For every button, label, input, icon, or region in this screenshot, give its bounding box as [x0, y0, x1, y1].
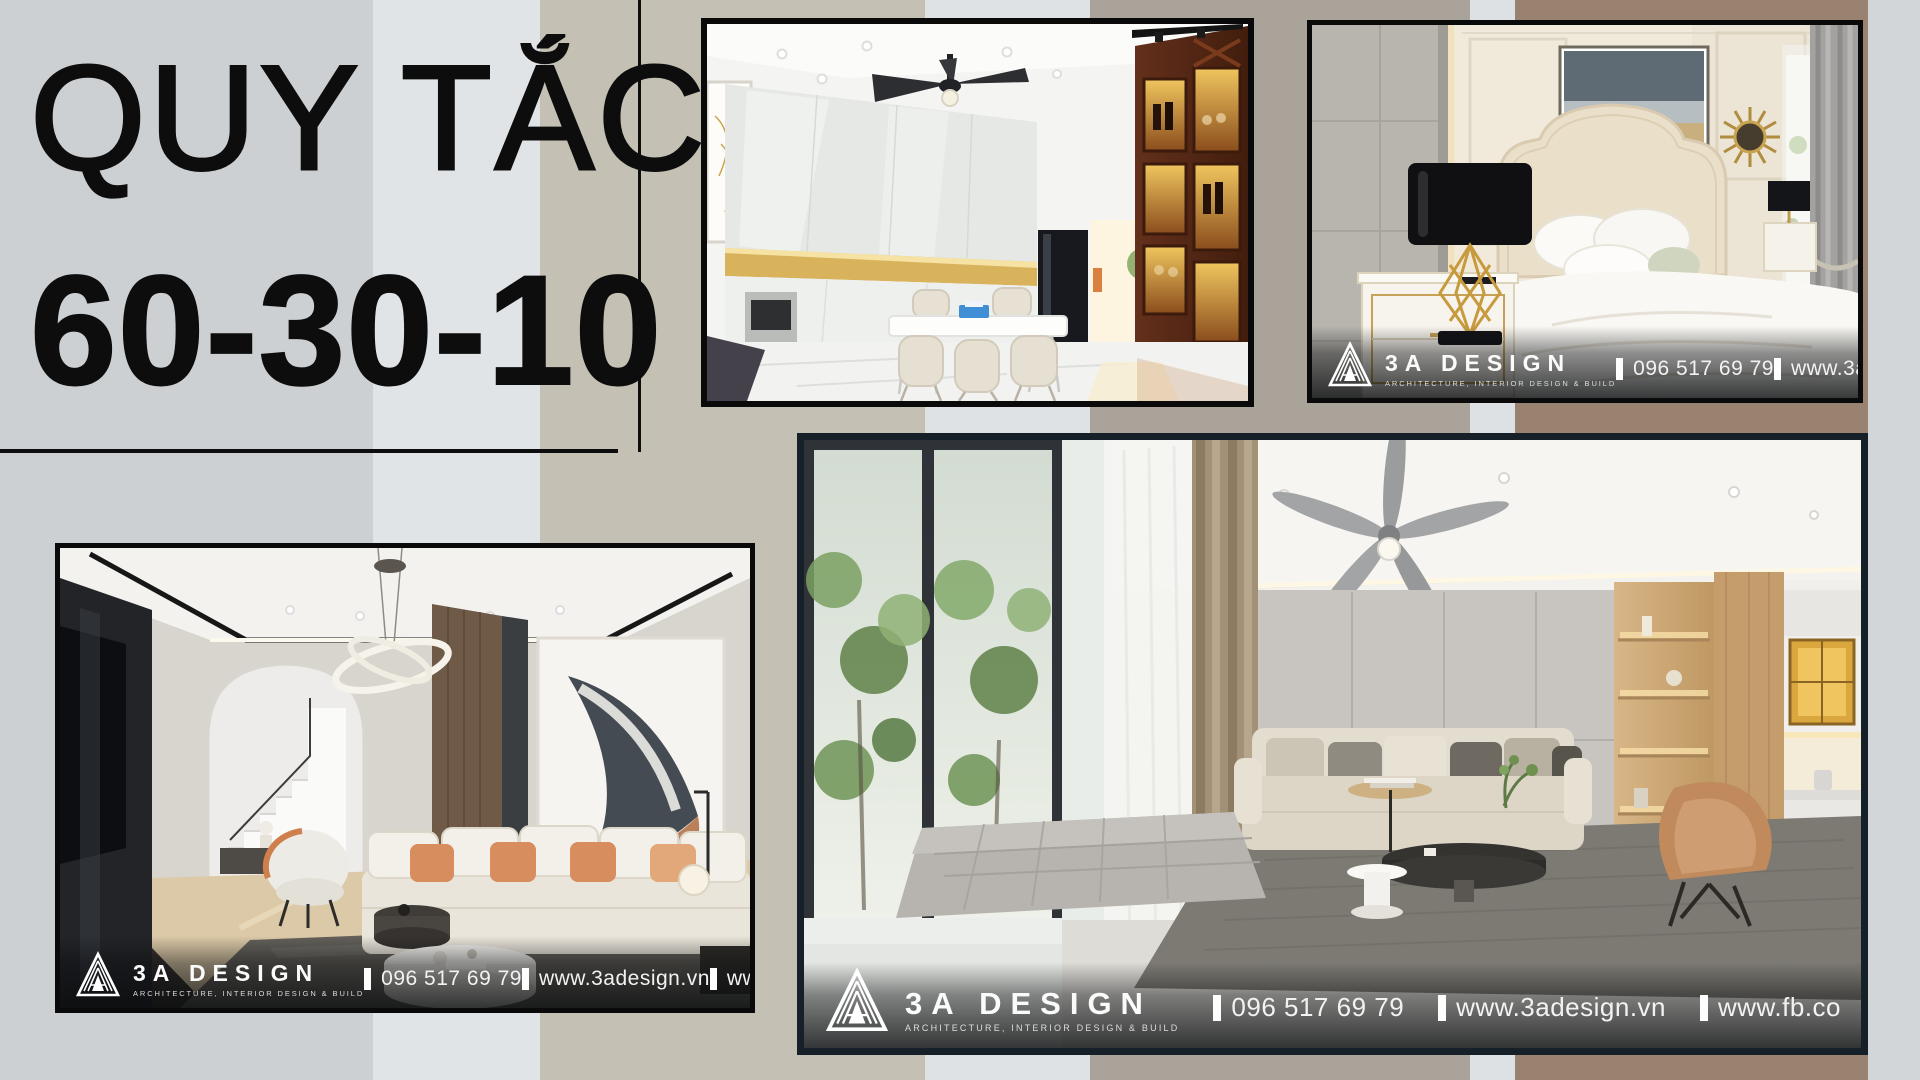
- poster-title: QUY TẮC 60-30-10: [30, 40, 708, 421]
- brand-block: 3A DESIGN ARCHITECTURE, INTERIOR DESIGN …: [1385, 352, 1616, 390]
- photo-kitchen: [701, 18, 1254, 407]
- watermark-phone: 096 517 69 79: [1616, 357, 1774, 389]
- separator-tick-icon: [1700, 995, 1708, 1021]
- website-url: www.3adesi: [1791, 357, 1863, 381]
- watermark-website: www.3adesi: [1774, 357, 1863, 389]
- poster-canvas: QUY TẮC 60-30-10: [0, 0, 1920, 1080]
- separator-tick-icon: [364, 968, 371, 990]
- watermark-bar: 3A DESIGN ARCHITECTURE, INTERIOR DESIGN …: [60, 936, 750, 1008]
- separator-tick-icon: [1774, 358, 1781, 380]
- 3a-design-logo-icon: [76, 951, 120, 999]
- watermark-phone: 096 517 69 79: [1213, 992, 1404, 1035]
- 3a-design-logo-icon: [1328, 341, 1372, 389]
- bg-stripe-8: [1868, 0, 1920, 1080]
- photo-bedroom: 3A DESIGN ARCHITECTURE, INTERIOR DESIGN …: [1307, 20, 1863, 403]
- website-url: www.3adesign.vn: [539, 967, 710, 991]
- brand-name: 3A DESIGN: [905, 988, 1179, 1019]
- watermark-facebook: www.fb.co: [1700, 992, 1841, 1035]
- separator-tick-icon: [710, 968, 717, 990]
- brand-tagline: ARCHITECTURE, INTERIOR DESIGN & BUILD: [1385, 380, 1616, 388]
- separator-tick-icon: [522, 968, 529, 990]
- photo-living-room: 3A DESIGN ARCHITECTURE, INTERIOR DESIGN …: [55, 543, 755, 1013]
- photo-main-living-room: 3A DESIGN ARCHITECTURE, INTERIOR DESIGN …: [797, 433, 1868, 1055]
- kitchen-photo-image: [707, 24, 1248, 401]
- brand-name: 3A DESIGN: [1385, 352, 1616, 375]
- facebook-url: www.fb.com/3adesign.v: [727, 967, 755, 991]
- facebook-url: www.fb.co: [1718, 992, 1841, 1023]
- main-living-room-photo-image: [804, 440, 1861, 1048]
- brand-name: 3A DESIGN: [133, 962, 364, 985]
- 3a-design-logo-icon: [826, 967, 892, 1035]
- title-line-2: 60-30-10: [30, 242, 708, 421]
- watermark-phone: 096 517 69 79: [364, 967, 522, 999]
- brand-tagline: ARCHITECTURE, INTERIOR DESIGN & BUILD: [905, 1024, 1179, 1033]
- phone-number: 096 517 69 79: [1231, 992, 1404, 1023]
- watermark-bar: 3A DESIGN ARCHITECTURE, INTERIOR DESIGN …: [1312, 326, 1858, 398]
- separator-tick-icon: [1616, 358, 1623, 380]
- phone-number: 096 517 69 79: [381, 967, 522, 991]
- watermark-facebook: www.fb.com/3adesign.v: [710, 967, 755, 999]
- separator-tick-icon: [1438, 995, 1446, 1021]
- title-line-1: QUY TẮC: [30, 40, 708, 196]
- brand-block: 3A DESIGN ARCHITECTURE, INTERIOR DESIGN …: [133, 962, 364, 1000]
- watermark-bar: 3A DESIGN ARCHITECTURE, INTERIOR DESIGN …: [804, 962, 1861, 1048]
- brand-block: 3A DESIGN ARCHITECTURE, INTERIOR DESIGN …: [905, 988, 1179, 1035]
- brand-tagline: ARCHITECTURE, INTERIOR DESIGN & BUILD: [133, 990, 364, 998]
- phone-number: 096 517 69 79: [1633, 357, 1774, 381]
- separator-tick-icon: [1213, 995, 1221, 1021]
- website-url: www.3adesign.vn: [1456, 992, 1666, 1023]
- title-divider-horizontal: [0, 449, 618, 453]
- watermark-website: www.3adesign.vn: [1438, 992, 1666, 1035]
- watermark-website: www.3adesign.vn: [522, 967, 710, 999]
